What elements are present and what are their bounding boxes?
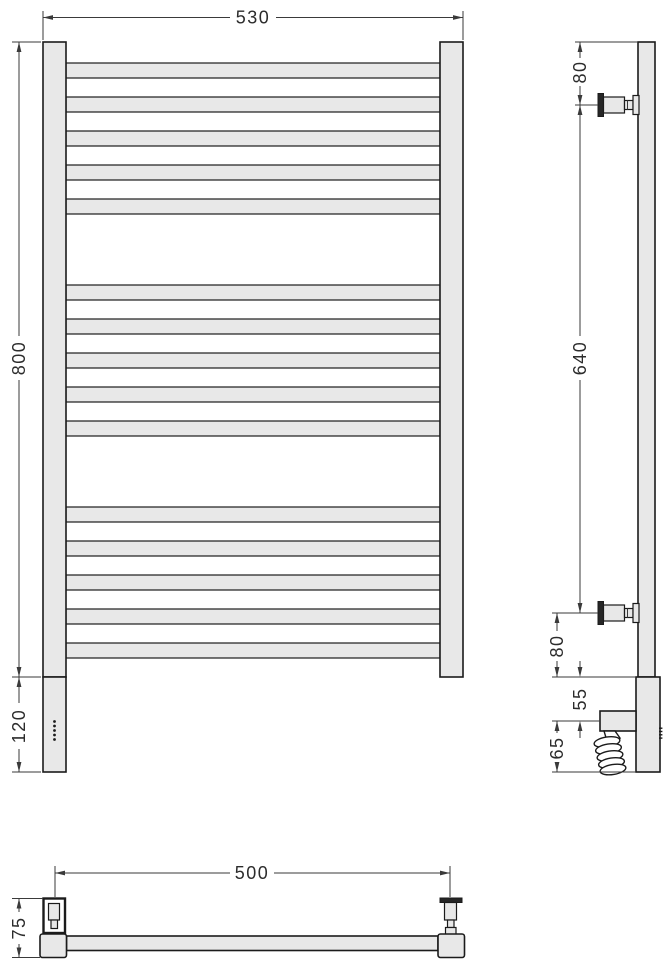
- rung: [66, 387, 440, 402]
- rung: [66, 319, 440, 334]
- front-view: 530 800 120: [9, 8, 463, 773]
- front-rungs: [66, 63, 440, 658]
- side-dim-top-bracket: 80: [570, 42, 590, 105]
- rung: [66, 199, 440, 214]
- side-view: 80 640 80 55 65: [547, 42, 662, 776]
- indicator-dot: [53, 720, 56, 723]
- plan-right-foot: [440, 898, 462, 935]
- plan-right-cap: [438, 934, 465, 958]
- rung: [66, 541, 440, 556]
- front-right-post: [440, 42, 463, 677]
- rung: [66, 507, 440, 522]
- plan-dim-depth: 75: [9, 899, 43, 958]
- side-bottom-bracket-label: 80: [547, 634, 567, 657]
- side-top-bracket-label: 80: [570, 60, 590, 83]
- side-dim-bottom-bracket: 80: [547, 613, 567, 677]
- plan-bar: [67, 936, 439, 951]
- indicator-dot: [53, 738, 56, 741]
- rung: [66, 421, 440, 436]
- rung: [66, 643, 440, 658]
- front-left-post: [43, 42, 66, 677]
- side-dim-bracket-span: 640: [570, 105, 590, 613]
- side-dim-terminal-box: 55: [570, 661, 590, 738]
- indicator-dot: [53, 725, 56, 728]
- plan-left-cap: [40, 934, 67, 958]
- front-dim-heater: 120: [9, 677, 41, 772]
- rung: [66, 97, 440, 112]
- side-cable-label: 65: [547, 736, 567, 759]
- indicator-dot: [53, 729, 56, 732]
- indicator-dot: [659, 737, 662, 738]
- plan-depth-label: 75: [9, 916, 29, 939]
- front-dim-height: 800: [9, 42, 41, 677]
- side-heater-housing: [636, 677, 660, 772]
- side-bracket-top: [598, 94, 639, 117]
- side-terminal-box: [600, 711, 636, 731]
- plan-view: 500 75: [9, 863, 465, 958]
- side-dim-cable: 65: [547, 721, 567, 772]
- side-bracket-span-label: 640: [570, 341, 590, 376]
- power-cable-coil: [593, 731, 626, 776]
- technical-drawing: 530 800 120: [0, 0, 672, 970]
- side-terminal-box-label: 55: [570, 687, 590, 710]
- rung: [66, 285, 440, 300]
- rung: [66, 353, 440, 368]
- front-heater-housing: [43, 677, 66, 772]
- plan-left-foot: [44, 899, 66, 934]
- side-post: [638, 42, 655, 677]
- front-heater-label: 120: [9, 709, 29, 744]
- rung: [66, 609, 440, 624]
- plan-width-label: 500: [235, 863, 270, 883]
- front-dim-width: 530: [43, 8, 463, 41]
- rung: [66, 165, 440, 180]
- indicator-dot: [659, 728, 662, 729]
- indicator-dot: [53, 734, 56, 737]
- rung: [66, 575, 440, 590]
- side-bracket-bottom: [598, 602, 639, 625]
- indicator-dot: [659, 734, 662, 735]
- side-extension-lines: [552, 42, 638, 772]
- front-height-label: 800: [9, 341, 29, 376]
- plan-dim-width: 500: [55, 863, 450, 897]
- rung: [66, 131, 440, 146]
- rung: [66, 63, 440, 78]
- front-width-label: 530: [236, 8, 271, 28]
- indicator-dot: [659, 731, 662, 732]
